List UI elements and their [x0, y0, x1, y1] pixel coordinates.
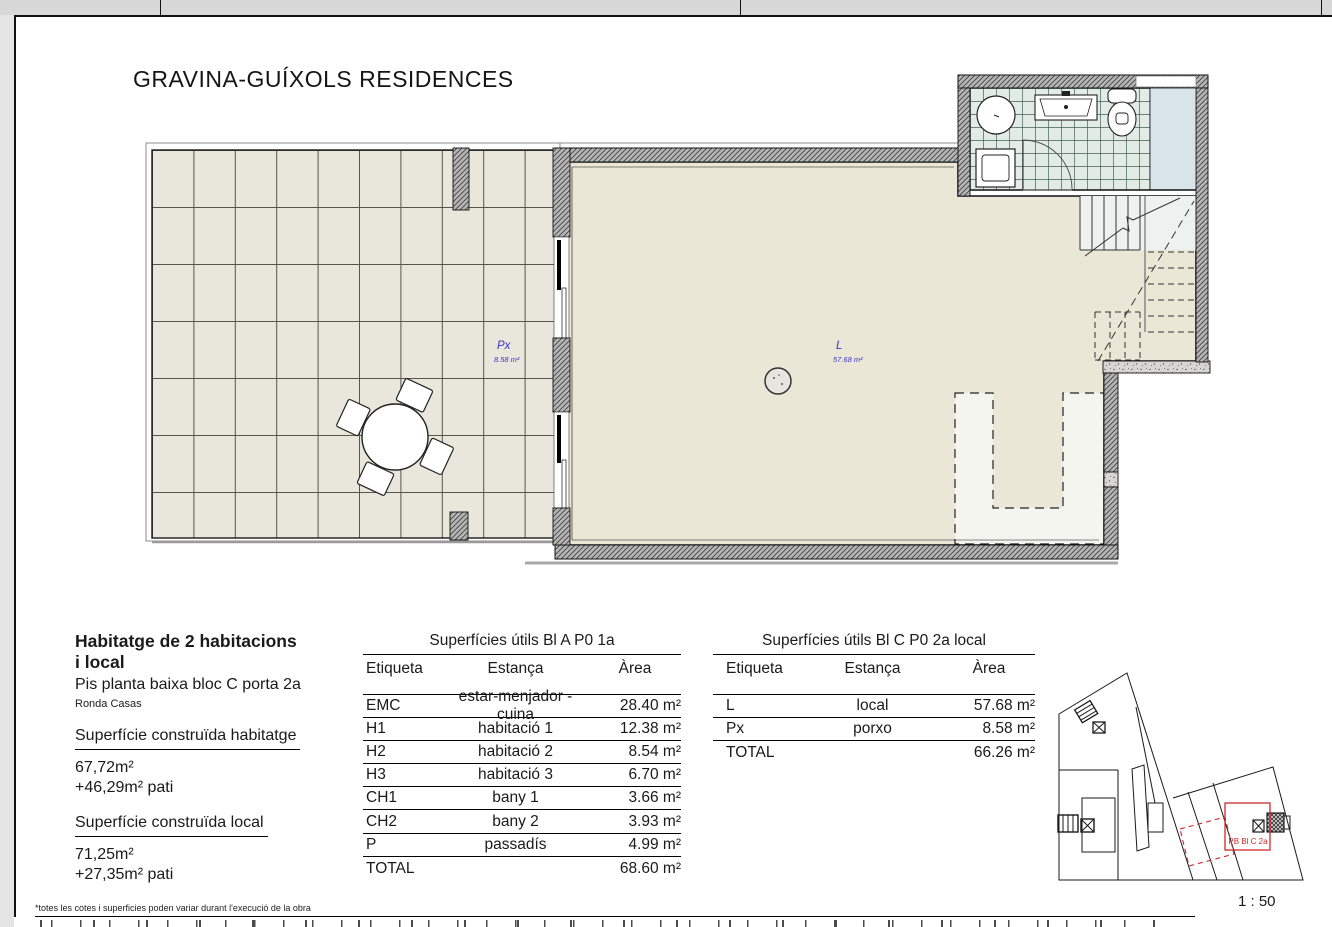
table-title: Superfícies útils Bl C P0 2a local	[713, 632, 1035, 655]
cell-area: 3.93 m²	[589, 813, 681, 831]
col-area: Àrea	[589, 660, 681, 680]
cell-room: habitació 3	[442, 766, 589, 784]
unit-title-line1: Habitatge de 2 habitacions	[75, 631, 335, 652]
room-label-local: L	[836, 341, 842, 353]
cell-label: H3	[366, 766, 442, 784]
sink-counter	[1035, 91, 1097, 120]
total-label: TOTAL	[366, 860, 442, 878]
cell-room: estar-menjador -cuina	[442, 688, 589, 724]
cell-room: local	[802, 697, 943, 715]
table-row: EMC estar-menjador -cuina 28.40 m²	[363, 695, 681, 718]
margin-tick	[160, 0, 161, 15]
table-total-row: TOTAL 66.26 m²	[713, 741, 1035, 765]
col-estanca: Estança	[802, 660, 943, 680]
cell-label: CH1	[366, 789, 442, 807]
unit-subtitle: Pis planta baixa bloc C porta 2a	[75, 676, 335, 694]
cell-label: H2	[366, 743, 442, 761]
table-row: H1 habitació 1 12.38 m²	[363, 718, 681, 741]
table-header: Etiqueta Estança Àrea	[713, 655, 1035, 680]
cell-area: 8.54 m²	[589, 743, 681, 761]
drawing-scale: 1 : 50	[1238, 893, 1276, 910]
built-dwelling-label: Superfície construïda habitatge	[75, 727, 300, 750]
cell-area: 57.68 m²	[943, 697, 1035, 715]
cell-label: Px	[726, 720, 802, 738]
unit-address: Ronda Casas	[75, 698, 335, 710]
cell-area: 8.58 m²	[943, 720, 1035, 738]
col-etiqueta: Etiqueta	[366, 660, 442, 680]
unit-info-block: Habitatge de 2 habitacions i local Pis p…	[75, 631, 335, 884]
sliding-door	[554, 237, 569, 338]
table-row: H3 habitació 3 6.70 m²	[363, 764, 681, 787]
table-total-row: TOTAL 68.60 m²	[363, 857, 681, 881]
unit-title-line2: i local	[75, 652, 335, 673]
areas-table-bloc-c: Superfícies útils Bl C P0 2a local Etiqu…	[713, 632, 1035, 765]
pillar	[450, 512, 468, 540]
table-title: Superfícies útils Bl A P0 1a	[363, 632, 681, 655]
areas-table-bloc-a: Superfícies útils Bl A P0 1a Etiqueta Es…	[363, 632, 681, 881]
margin-tick	[1321, 0, 1322, 15]
cell-area: 12.38 m²	[589, 720, 681, 738]
toilet	[1108, 89, 1136, 136]
cell-room: habitació 1	[442, 720, 589, 738]
table-header: Etiqueta Estança Àrea	[363, 655, 681, 680]
cell-label: L	[726, 697, 802, 715]
cell-area: 28.40 m²	[589, 697, 681, 715]
built-local-label: Superfície construïda local	[75, 814, 268, 837]
room-area-local: 57.68 m²	[833, 356, 863, 364]
window-top-strip	[0, 0, 1332, 15]
cell-room: bany 1	[442, 789, 589, 807]
cell-room: passadís	[442, 836, 589, 854]
total-area: 68.60 m²	[589, 860, 681, 878]
footnote: *totes les cotes i superficies poden var…	[35, 903, 311, 913]
cell-label: CH2	[366, 813, 442, 831]
cell-room: habitació 2	[442, 743, 589, 761]
drawing-sheet: GRAVINA-GUÍXOLS RESIDENCES	[0, 0, 1332, 927]
built-dwelling-patio: +46,29m² pati	[75, 779, 335, 797]
table-row: Px porxo 8.58 m²	[713, 718, 1035, 741]
window-left-strip	[0, 15, 14, 927]
table-row: CH1 bany 1 3.66 m²	[363, 787, 681, 810]
cell-label: H1	[366, 720, 442, 738]
cell-area: 3.66 m²	[589, 789, 681, 807]
cell-label: EMC	[366, 697, 442, 715]
cell-area: 4.99 m²	[589, 836, 681, 854]
clipped-titleblock-text	[40, 920, 1160, 927]
table-row: L local 57.68 m²	[713, 695, 1035, 718]
floor-plan-drawing	[140, 70, 1230, 570]
built-local-patio: +27,35m² pati	[75, 866, 335, 884]
margin-tick	[740, 0, 741, 15]
pillar	[453, 148, 469, 210]
titleblock-rule	[35, 916, 1195, 917]
washbasin-round	[977, 96, 1015, 134]
col-estanca: Estança	[442, 660, 589, 680]
room-label-porxo: Px	[497, 341, 510, 353]
total-area: 66.26 m²	[943, 744, 1035, 762]
cell-room: bany 2	[442, 813, 589, 831]
room-area-porxo: 8.58 m²	[494, 356, 519, 364]
sheet-border-top	[14, 15, 1332, 17]
built-local-area: 71,25m²	[75, 846, 335, 864]
total-label: TOTAL	[726, 744, 802, 762]
col-etiqueta: Etiqueta	[726, 660, 802, 680]
cell-room: porxo	[802, 720, 943, 738]
table-row: H2 habitació 2 8.54 m²	[363, 741, 681, 764]
table-row: P passadís 4.99 m²	[363, 834, 681, 857]
sheet-border-left	[14, 15, 16, 917]
cell-area: 6.70 m²	[589, 766, 681, 784]
key-plan-unit-label: PB Bl C 2a	[1228, 837, 1268, 846]
col-area: Àrea	[943, 660, 1035, 680]
cell-label: P	[366, 836, 442, 854]
structural-column	[765, 368, 791, 394]
key-plan-drawing: PB Bl C 2a	[1052, 663, 1332, 908]
table-row: CH2 bany 2 3.93 m²	[363, 810, 681, 833]
built-dwelling-area: 67,72m²	[75, 759, 335, 777]
sliding-door	[554, 412, 569, 508]
highlighted-unit	[1180, 803, 1270, 866]
